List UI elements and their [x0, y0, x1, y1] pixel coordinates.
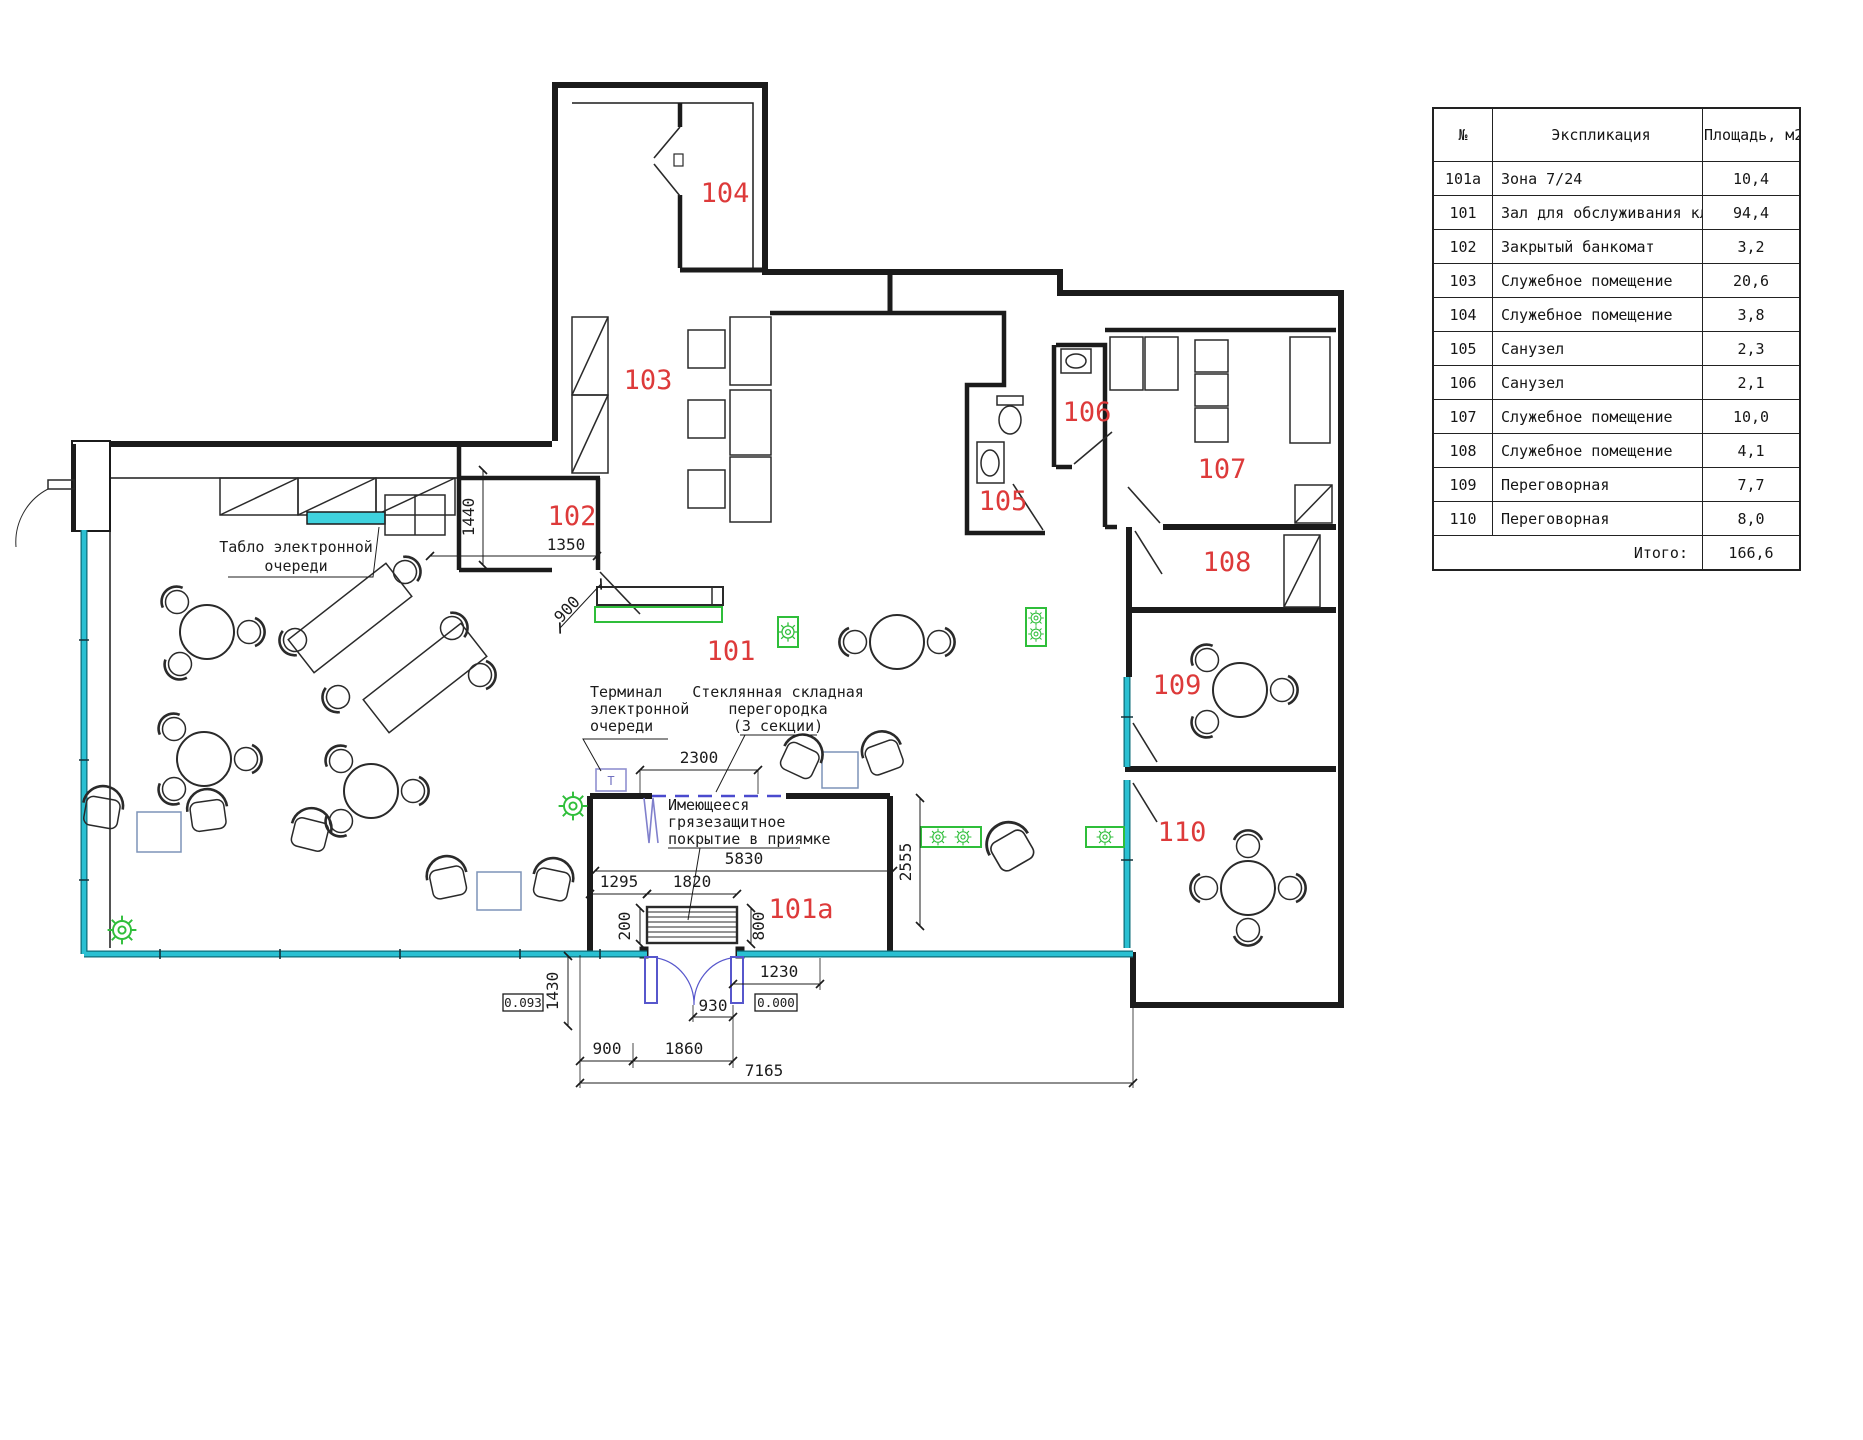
note-glass-partition: Стеклянная складная перегородка (3 секци… — [692, 683, 864, 792]
cabinet-108 — [1284, 535, 1320, 607]
elevation-outside: 0.093 — [504, 995, 542, 1010]
dim-900-front: 900 — [593, 1039, 622, 1058]
legend-total-value: 166,6 — [1703, 536, 1801, 571]
room-label-105: 105 — [979, 486, 1028, 517]
storefront-glazing — [79, 530, 1133, 959]
room-label-110: 110 — [1158, 817, 1207, 848]
svg-text:Имеющееся: Имеющееся — [668, 796, 749, 814]
main-entrance-double-door — [645, 957, 743, 1005]
dim-1820: 1820 — [673, 872, 712, 891]
note-queue-display: Табло электронной очереди — [219, 527, 379, 577]
svg-text:(3 секции): (3 секции) — [733, 717, 823, 735]
legend-total-row: Итого: 166,6 — [1433, 536, 1800, 571]
table-row: 109 Переговорная 7,7 — [1433, 468, 1800, 502]
dim-1440: 1440 — [459, 498, 478, 537]
sink-106 — [1061, 349, 1091, 373]
storage-107 — [1110, 337, 1332, 523]
dirt-protection-mat — [647, 907, 737, 943]
dim-2300: 2300 — [680, 748, 719, 767]
dim-7165: 7165 — [745, 1061, 784, 1080]
table-row: 102 Закрытый банкомат 3,2 — [1433, 230, 1800, 264]
table-row: 106 Санузел 2,1 — [1433, 366, 1800, 400]
legend-header-area: Площадь, м2 — [1703, 108, 1801, 162]
room-label-107: 107 — [1198, 454, 1247, 485]
table-row: 101а Зона 7/24 10,4 — [1433, 162, 1800, 196]
dim-1860: 1860 — [665, 1039, 704, 1058]
dim-1295: 1295 — [600, 872, 639, 891]
room-label-102: 102 — [548, 501, 597, 532]
terminal-symbol: T — [607, 774, 614, 788]
door-leaf-107 — [1128, 487, 1160, 523]
toilet-105 — [997, 396, 1023, 434]
angled-desks-hall — [288, 563, 487, 732]
dim-1230: 1230 — [760, 962, 799, 981]
dim-200: 200 — [615, 912, 634, 941]
legend-total-label: Итого: — [1433, 536, 1703, 571]
room-label-109: 109 — [1153, 670, 1202, 701]
legend-header-row: № Экспликация Площадь, м2 — [1433, 108, 1800, 162]
wall-cabinets-hall — [220, 478, 455, 515]
dim-930: 930 — [699, 996, 728, 1015]
sink-105 — [977, 442, 1004, 483]
svg-text:электронной: электронной — [590, 700, 689, 718]
table-row: 101 Зал для обслуживания клиентов 94,4 — [1433, 196, 1800, 230]
room-label-103: 103 — [624, 365, 673, 396]
table-row: 105 Санузел 2,3 — [1433, 332, 1800, 366]
dimension-labels: 1440 1350 900 2300 5830 1295 1820 200 80… — [459, 498, 915, 1080]
table-row: 103 Служебное помещение 20,6 — [1433, 264, 1800, 298]
dim-1350: 1350 — [547, 535, 586, 554]
door-leaf-110 — [1133, 783, 1157, 822]
dim-800: 800 — [749, 912, 768, 941]
room-label-101: 101 — [707, 636, 756, 667]
svg-text:Терминал: Терминал — [590, 683, 662, 701]
svg-text:Табло электронной: Табло электронной — [219, 538, 373, 556]
queue-display-board — [307, 512, 385, 524]
table-row: 108 Служебное помещение 4,1 — [1433, 434, 1800, 468]
door-leaf-109 — [1133, 723, 1157, 762]
workstations-103 — [688, 317, 771, 522]
dim-1430: 1430 — [543, 972, 562, 1011]
svg-text:очереди: очереди — [264, 557, 327, 575]
table-row: 107 Служебное помещение 10,0 — [1433, 400, 1800, 434]
folded-partition-stack — [644, 798, 658, 843]
svg-text:перегородка: перегородка — [728, 700, 827, 718]
legend-table: № Экспликация Площадь, м2 101а Зона 7/24… — [1432, 107, 1794, 571]
cabinets-103 — [572, 317, 608, 473]
legend-header-name: Экспликация — [1493, 108, 1703, 162]
legend-header-no: № — [1433, 108, 1493, 162]
door-leaf-104 — [654, 127, 683, 196]
room-label-108: 108 — [1203, 547, 1252, 578]
note-queue-terminal: Терминал электронной очереди T — [583, 683, 689, 788]
floor-plan-canvas: 1440 1350 900 2300 5830 1295 1820 200 80… — [0, 0, 1863, 1440]
elevation-inside: 0.000 — [757, 995, 795, 1010]
svg-text:покрытие в приямке: покрытие в приямке — [668, 830, 831, 848]
table-row: 110 Переговорная 8,0 — [1433, 502, 1800, 536]
svg-text:грязезащитное: грязезащитное — [668, 813, 785, 831]
table-row: 104 Служебное помещение 3,8 — [1433, 298, 1800, 332]
room-label-101a: 101а — [768, 894, 833, 925]
bench-green — [595, 607, 722, 622]
svg-text:очереди: очереди — [590, 717, 653, 735]
room-label-106: 106 — [1063, 397, 1112, 428]
room-label-104: 104 — [701, 178, 750, 209]
svg-text:Стеклянная складная: Стеклянная складная — [692, 683, 864, 701]
dim-900-door: 900 — [550, 592, 584, 626]
dim-2555: 2555 — [896, 843, 915, 882]
door-side-entrance — [16, 480, 74, 547]
door-leaf-108 — [1135, 531, 1162, 574]
dim-5830: 5830 — [725, 849, 764, 868]
